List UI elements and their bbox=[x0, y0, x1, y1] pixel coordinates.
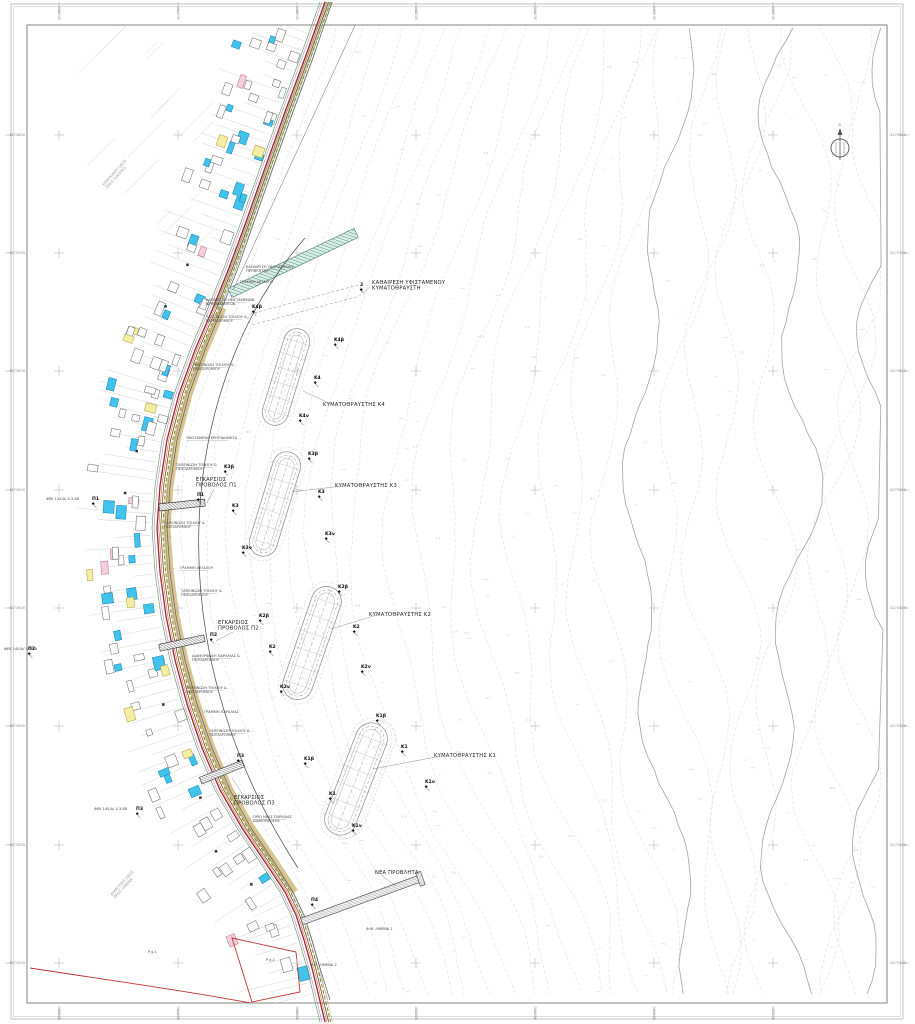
sea-tick bbox=[718, 415, 721, 416]
building bbox=[109, 397, 118, 407]
parcel-line bbox=[241, 874, 264, 890]
grid-northing-label: 4273600 bbox=[9, 369, 26, 373]
point-leader bbox=[29, 655, 32, 658]
shed bbox=[162, 703, 165, 706]
depth-contour bbox=[566, 28, 667, 994]
breakwater-ticks bbox=[278, 585, 346, 700]
breakwater-title: ΚΥΜΑΤΟΘΡΑΥΣΤΗΣ Κ4 bbox=[323, 402, 385, 408]
grid-northing-label: 4273400 bbox=[9, 606, 26, 610]
parcel-line bbox=[144, 316, 192, 337]
grid-northing-label: 4273700 bbox=[9, 251, 26, 255]
depth-contour bbox=[590, 28, 680, 994]
parcel-line bbox=[214, 885, 271, 923]
beach-speckle bbox=[172, 485, 173, 486]
grid-easting-label: 302800 bbox=[296, 6, 300, 20]
callout-note: ΓΡΑΜΜΗ ΠΑΡΑΛΙΑΣ bbox=[204, 710, 239, 714]
sea-tick bbox=[634, 504, 636, 505]
building bbox=[274, 28, 286, 42]
building bbox=[241, 847, 257, 863]
grid-northing-label: 4273500 bbox=[890, 488, 907, 492]
depth-contour bbox=[742, 28, 798, 994]
building bbox=[101, 561, 109, 574]
field-line bbox=[124, 159, 159, 194]
bathymetry-contours: 5.45.88.11.86.05.46.15.61.76.18.16.25.77… bbox=[180, 28, 883, 994]
grid-easting-label: 302600 bbox=[58, 1006, 62, 1020]
building bbox=[160, 665, 170, 677]
parcel-line bbox=[134, 678, 173, 689]
building bbox=[126, 597, 135, 608]
building bbox=[176, 226, 189, 239]
depth-contour bbox=[758, 28, 823, 994]
depth-value: 4.4 bbox=[853, 848, 858, 852]
grid-northing-label: 4273100 bbox=[890, 961, 907, 965]
depth-contour bbox=[350, 28, 515, 994]
building bbox=[114, 663, 122, 671]
parcel-line bbox=[117, 615, 159, 622]
parcel-line bbox=[150, 261, 214, 287]
point-leader bbox=[305, 765, 308, 768]
grid-northing-label: 4273700 bbox=[890, 251, 907, 255]
point-label: Κ3 bbox=[232, 503, 239, 509]
parcel-line bbox=[164, 210, 234, 236]
depth-value: 4.6 bbox=[808, 719, 813, 723]
point-label: Κ3ν bbox=[325, 531, 335, 537]
point-leader bbox=[243, 554, 246, 557]
depth-value: 5.8 bbox=[355, 604, 360, 608]
area-title: ΠΡΟΒΟΛΟΣ Π3 bbox=[234, 801, 275, 807]
depth-contour bbox=[681, 28, 741, 994]
point-leader bbox=[211, 641, 214, 644]
building bbox=[118, 409, 126, 419]
depth-value: 6.7 bbox=[356, 50, 361, 54]
point-leader bbox=[402, 753, 405, 756]
building bbox=[167, 281, 179, 293]
depth-value: 9.2 bbox=[418, 244, 423, 248]
building bbox=[280, 957, 293, 973]
callout-note: ΠΕΖΟΔΡΟΜΙΟΥ bbox=[192, 658, 220, 662]
depth-value: 3.4 bbox=[415, 202, 420, 206]
callout-note: ΠΕΖΟΔΡΟΜΙΟΥ bbox=[186, 690, 214, 694]
sea-tick bbox=[697, 798, 702, 799]
building bbox=[222, 82, 234, 96]
grid-easting-label: 302700 bbox=[177, 6, 181, 20]
depth-contour bbox=[289, 28, 453, 994]
building bbox=[247, 921, 260, 933]
field-line bbox=[96, 27, 125, 56]
grid-northing-label: 4273600 bbox=[890, 369, 907, 373]
depth-value: 1.7 bbox=[609, 659, 614, 663]
building bbox=[114, 630, 122, 641]
depth-value: 1.8 bbox=[514, 671, 519, 675]
title-leader bbox=[303, 391, 331, 404]
sea-tick bbox=[850, 882, 855, 883]
field-line bbox=[178, 102, 214, 138]
sea-tick bbox=[712, 99, 716, 100]
callout-note: Φ.Μ. ΛΙΜΕΝΑ 2 bbox=[310, 963, 337, 967]
callout-note: ΓΡΑΜΜΗ ΑΙΓΙΑΛΟΥ bbox=[180, 566, 214, 570]
breakwater-outline bbox=[247, 284, 364, 325]
parcel-line bbox=[142, 699, 178, 709]
building bbox=[86, 569, 93, 581]
sea-tick bbox=[432, 811, 438, 813]
grid-easting-label: 303000 bbox=[534, 6, 538, 20]
depth-value: 3.1 bbox=[505, 457, 510, 461]
depth-value: 4.1 bbox=[578, 237, 583, 241]
building bbox=[226, 141, 235, 154]
sea-tick bbox=[266, 603, 271, 604]
depth-value: 6.1 bbox=[590, 497, 595, 501]
building bbox=[199, 179, 211, 190]
parcel-line bbox=[133, 574, 153, 576]
point-label: Π1 bbox=[197, 492, 204, 498]
point-leader bbox=[260, 622, 263, 625]
sea-tick bbox=[386, 343, 391, 344]
section-tick bbox=[257, 507, 288, 516]
sea-tick bbox=[228, 700, 232, 701]
building bbox=[129, 555, 136, 563]
section-tick bbox=[282, 337, 311, 346]
beach-speckle bbox=[229, 785, 230, 786]
depth-value: 5.7 bbox=[602, 798, 607, 802]
parcel-line bbox=[201, 214, 236, 227]
title-leader bbox=[373, 756, 441, 769]
beach-speckle bbox=[169, 548, 170, 549]
shed bbox=[215, 850, 218, 853]
callout-note: Ρ.χ.1 bbox=[148, 950, 157, 954]
beach-speckle bbox=[190, 377, 191, 378]
breakwater-title: ΚΥΜΑΤΟΘΡΑΥΣΤΗΣ Κ1 bbox=[434, 753, 496, 759]
sea-tick bbox=[362, 115, 367, 117]
field-line bbox=[147, 42, 164, 59]
building bbox=[134, 653, 145, 661]
grid-easting-label: 302900 bbox=[415, 6, 419, 20]
point-label: Κ3β bbox=[224, 464, 235, 470]
grid-easting-label: 302900 bbox=[415, 1006, 419, 1020]
point-leader bbox=[270, 653, 273, 656]
point-leader bbox=[426, 788, 429, 791]
building bbox=[131, 414, 140, 422]
shed bbox=[199, 796, 202, 799]
point-label: Κ2β bbox=[259, 613, 270, 619]
depth-value: 2.5 bbox=[525, 325, 530, 329]
point-label: Κ4β bbox=[334, 337, 345, 343]
sea-tick bbox=[486, 597, 490, 598]
building bbox=[156, 806, 165, 819]
grid-northing-label: 4273300 bbox=[890, 724, 907, 728]
depth-value: 2.3 bbox=[526, 718, 531, 722]
parcel-line bbox=[88, 470, 153, 480]
parcel-line bbox=[136, 688, 175, 699]
north-label: Β bbox=[838, 123, 841, 127]
callout-note: ΠΕΖΟΔΡΟΜΙΟΥ bbox=[193, 367, 221, 371]
point-label: Κ4ν bbox=[299, 413, 309, 419]
sea-tick bbox=[786, 813, 789, 814]
depth-value: 4.0 bbox=[759, 263, 764, 267]
building bbox=[266, 42, 276, 52]
sea-tick bbox=[240, 333, 245, 335]
sea-tick bbox=[772, 261, 776, 262]
depth-contour bbox=[450, 28, 583, 994]
building bbox=[219, 189, 229, 199]
point-leader bbox=[233, 512, 236, 515]
shed bbox=[164, 305, 167, 308]
point-label: Π4 bbox=[311, 897, 318, 903]
beach-speckle bbox=[189, 672, 190, 673]
building bbox=[102, 606, 110, 620]
point-label: Κ1β bbox=[376, 713, 387, 719]
point-label: Κ1 bbox=[401, 744, 408, 750]
point-label: Κ4 bbox=[314, 375, 321, 381]
map-border bbox=[27, 25, 887, 1003]
building bbox=[181, 168, 193, 183]
callout-note: ΠΕΖΟΔΡΟΜΙΟΥ bbox=[176, 467, 204, 471]
sea-tick bbox=[805, 959, 808, 960]
grid-northing-label: 4273200 bbox=[9, 843, 26, 847]
building bbox=[231, 40, 241, 50]
crest-line bbox=[294, 591, 330, 695]
building bbox=[136, 516, 146, 530]
depth-contour bbox=[815, 28, 877, 994]
sea-tick bbox=[624, 117, 627, 118]
sea-tick bbox=[406, 991, 411, 992]
building bbox=[288, 51, 300, 63]
depth-contour bbox=[715, 28, 765, 994]
building bbox=[216, 134, 228, 147]
callout-note: ΠΡΟΒΛΗΤΑΣ bbox=[246, 269, 269, 273]
shore-boundary bbox=[30, 968, 332, 1020]
section-tick bbox=[293, 646, 325, 657]
parcel-line bbox=[142, 342, 184, 357]
point-leader bbox=[361, 291, 364, 294]
building bbox=[132, 496, 139, 508]
parcel-line bbox=[231, 167, 255, 175]
point-label: Κ3ν bbox=[242, 545, 252, 551]
road-line bbox=[161, 2, 329, 1022]
sea-tick bbox=[347, 880, 353, 881]
point-label: Κ1ν bbox=[352, 823, 362, 829]
parcel-line bbox=[229, 865, 258, 884]
sea-tick bbox=[822, 210, 827, 211]
point-label: Π2 bbox=[210, 632, 217, 638]
callout-note: ΦΕΚ 145/Δ/ 4.3.88 bbox=[46, 497, 80, 501]
field-line bbox=[150, 99, 169, 118]
point-label: Κ1 bbox=[329, 791, 336, 797]
sea-tick bbox=[836, 184, 840, 185]
building bbox=[165, 754, 179, 768]
depth-value: 1.5 bbox=[607, 65, 612, 69]
point-leader bbox=[326, 540, 329, 543]
depth-value: 4.6 bbox=[711, 72, 716, 76]
depth-contour bbox=[781, 28, 861, 994]
depth-value: 6.6 bbox=[830, 786, 835, 790]
point-leader bbox=[93, 505, 96, 508]
depth-value: 1.9 bbox=[545, 924, 550, 928]
breakwater-outline bbox=[323, 715, 401, 844]
grid-easting-label: 303000 bbox=[534, 1006, 538, 1020]
beach-speckle bbox=[172, 571, 173, 572]
sea-tick bbox=[676, 57, 679, 58]
road-line bbox=[157, 2, 325, 1022]
beach-speckle bbox=[189, 405, 190, 406]
depth-value: 2.1 bbox=[777, 63, 782, 67]
building bbox=[103, 586, 111, 594]
sea-tick bbox=[404, 480, 408, 481]
depth-value: 6.1 bbox=[413, 445, 418, 449]
grid-northing-label: 4273400 bbox=[890, 606, 907, 610]
building bbox=[196, 888, 210, 903]
callout-note: ΓΡΑΜΜΗ ΑΙΓΙΑΛΟΥ bbox=[240, 280, 274, 284]
field-line bbox=[79, 54, 97, 72]
grid-easting-label: 303200 bbox=[772, 6, 776, 20]
building bbox=[188, 785, 202, 798]
sea-tick bbox=[751, 767, 755, 768]
parcel-line bbox=[190, 198, 240, 216]
outer-border-2 bbox=[14, 7, 901, 1017]
sea-tick bbox=[825, 571, 830, 572]
building bbox=[249, 38, 261, 50]
sea-tick bbox=[507, 635, 510, 636]
building bbox=[101, 593, 113, 605]
depth-contour bbox=[303, 28, 464, 994]
field-line bbox=[147, 41, 158, 52]
point-label: Κ2 bbox=[269, 644, 276, 650]
depth-value: 5.7 bbox=[464, 631, 469, 635]
depth-value: 5.6 bbox=[451, 870, 456, 874]
new-pier bbox=[301, 875, 422, 925]
depth-value: 1.0 bbox=[812, 257, 817, 261]
breakwater-ticks bbox=[319, 721, 392, 837]
sea-tick bbox=[665, 659, 667, 660]
sea-tick bbox=[415, 421, 419, 422]
point-label: 2 bbox=[360, 282, 363, 288]
sea-tick bbox=[783, 58, 785, 59]
sea-tick bbox=[381, 682, 383, 683]
field-line bbox=[157, 210, 171, 224]
depth-value: 7.6 bbox=[538, 854, 543, 858]
beach-speckle bbox=[169, 519, 170, 520]
building bbox=[245, 897, 256, 910]
shed bbox=[250, 883, 253, 886]
field-line bbox=[193, 122, 214, 143]
grid-easting-label: 303100 bbox=[653, 6, 657, 20]
callout-note: ΦΕΚ 145/Δ/ 4.3.88 bbox=[94, 807, 128, 811]
building bbox=[198, 246, 207, 257]
sea-tick bbox=[796, 549, 800, 550]
building bbox=[116, 505, 127, 519]
breakwater-title: ΚΥΜΑΤΟΘΡΑΥΣΤΗΣ Κ3 bbox=[335, 483, 397, 489]
sea-tick bbox=[495, 295, 499, 296]
parcel-line bbox=[270, 983, 308, 992]
grid-northing-label: 4273800 bbox=[890, 133, 907, 137]
callout-note: ΠΕΖΟΔΡΟΜΙΟΥ bbox=[209, 733, 237, 737]
section-tick bbox=[262, 492, 293, 501]
sea-tick bbox=[755, 657, 760, 659]
site-plan-sheet: 5.45.88.11.86.05.46.15.61.76.18.16.25.77… bbox=[0, 0, 915, 1024]
point-leader bbox=[300, 422, 303, 425]
depth-contour bbox=[268, 28, 428, 994]
grid-northing-label: 4273200 bbox=[890, 843, 907, 847]
title-leader bbox=[216, 632, 233, 641]
beach-speckle bbox=[173, 471, 174, 472]
point-label: Κ1β bbox=[304, 756, 315, 762]
section-tick bbox=[267, 476, 298, 485]
sea-tick bbox=[543, 297, 546, 298]
sea-tick bbox=[374, 982, 377, 983]
callout-note: ΠΕΖΟΔΡΟΜΙΟΥ bbox=[164, 525, 192, 529]
road-line bbox=[165, 2, 333, 1022]
beach-speckle bbox=[172, 557, 173, 558]
point-leader bbox=[137, 815, 140, 818]
sea-tick bbox=[273, 581, 275, 582]
grid-northing-label: 4273800 bbox=[9, 133, 26, 137]
sea-tick bbox=[592, 580, 596, 581]
parcel-line bbox=[182, 794, 214, 810]
point-label: Π1 bbox=[92, 496, 99, 502]
building bbox=[138, 436, 146, 446]
depth-value: 7.3 bbox=[739, 350, 744, 354]
point-label: Κ2ν bbox=[280, 684, 290, 690]
parcel-line bbox=[105, 454, 157, 462]
beach-speckle bbox=[204, 355, 205, 356]
sea-tick bbox=[436, 195, 441, 196]
sea-tick bbox=[439, 774, 441, 775]
building bbox=[226, 934, 238, 948]
point-label: Κ4β bbox=[252, 304, 263, 310]
depth-value: 6.4 bbox=[803, 858, 808, 862]
depth-value: 6.8 bbox=[532, 355, 537, 359]
building bbox=[259, 873, 271, 884]
depth-contour bbox=[412, 28, 550, 994]
point-label: Κ2ν bbox=[361, 664, 371, 670]
beach-speckle bbox=[185, 415, 186, 416]
sea-tick bbox=[561, 583, 565, 584]
depth-value: 2.5 bbox=[601, 373, 606, 377]
depth-value: 1.0 bbox=[453, 629, 458, 633]
sea-tick bbox=[665, 280, 671, 282]
sea-tick bbox=[824, 369, 829, 370]
grid-northing-label: 4273500 bbox=[9, 488, 26, 492]
beach-speckle bbox=[206, 349, 207, 350]
title-leader bbox=[291, 486, 343, 492]
parcel-line bbox=[109, 563, 152, 566]
sea-tick bbox=[406, 449, 410, 450]
point-label: Κ2 bbox=[353, 624, 360, 630]
building bbox=[175, 708, 188, 722]
point-leader bbox=[315, 384, 318, 387]
beach-speckle bbox=[181, 409, 182, 410]
grid-easting-label: 303200 bbox=[772, 1006, 776, 1020]
sea-tick bbox=[324, 355, 329, 357]
building bbox=[276, 59, 286, 69]
parcel-line bbox=[100, 464, 155, 472]
parcel-line bbox=[255, 903, 283, 916]
sea-tick bbox=[511, 536, 515, 537]
point-label: Κ3β bbox=[308, 451, 319, 457]
depth-value: 0.7 bbox=[486, 696, 491, 700]
grid-easting-label: 303100 bbox=[653, 1006, 657, 1020]
depth-contour bbox=[538, 28, 642, 994]
building bbox=[172, 354, 181, 366]
building bbox=[143, 603, 154, 614]
building bbox=[162, 310, 171, 320]
field-line bbox=[87, 138, 115, 166]
point-leader bbox=[253, 313, 256, 316]
point-leader bbox=[312, 906, 315, 909]
sea-tick bbox=[752, 382, 754, 383]
sea-tick bbox=[573, 512, 576, 513]
sea-tick bbox=[792, 77, 797, 78]
sea-tick bbox=[689, 769, 694, 770]
